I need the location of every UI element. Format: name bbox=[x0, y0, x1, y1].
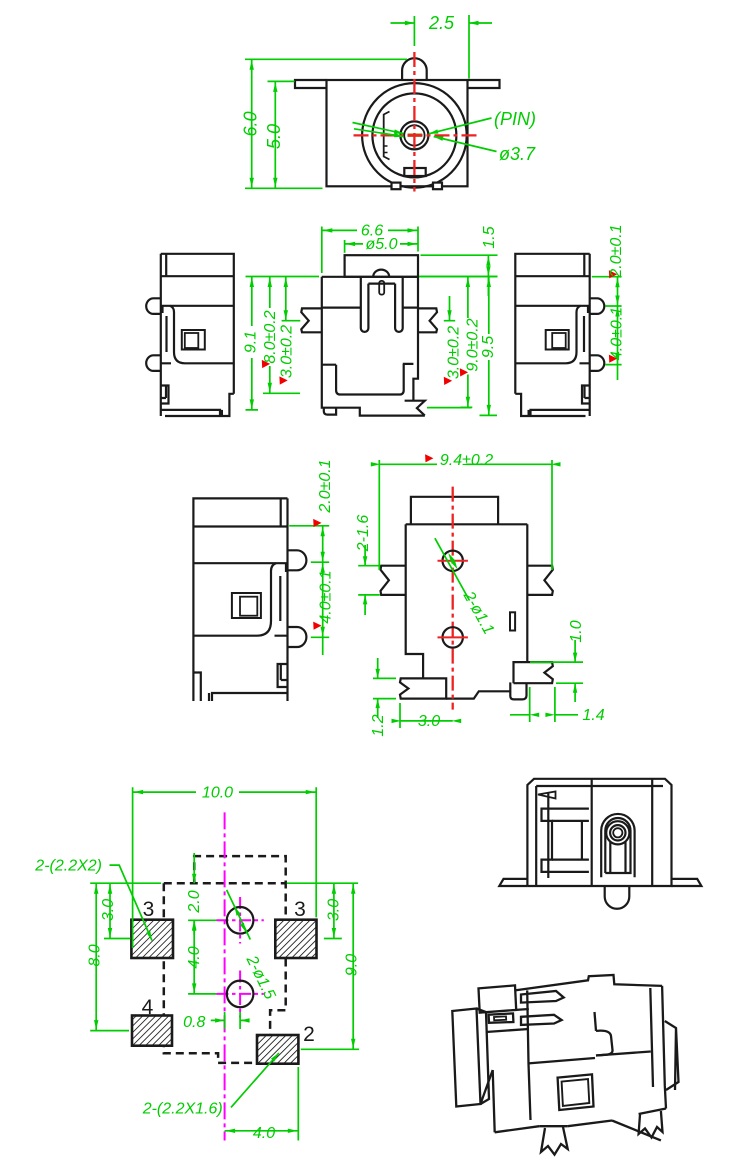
svg-text:ø5.0: ø5.0 bbox=[365, 236, 397, 253]
svg-text:4.0: 4.0 bbox=[186, 946, 203, 968]
svg-text:(PIN): (PIN) bbox=[494, 109, 536, 129]
svg-text:2-1.6: 2-1.6 bbox=[355, 515, 372, 553]
svg-text:6.0: 6.0 bbox=[240, 111, 260, 136]
svg-text:8.0±0.2: 8.0±0.2 bbox=[262, 310, 279, 363]
svg-text:ø3.7: ø3.7 bbox=[499, 144, 536, 164]
svg-text:9.0±0.2: 9.0±0.2 bbox=[465, 318, 482, 371]
svg-text:2.0±0.1: 2.0±0.1 bbox=[317, 459, 334, 513]
svg-text:5.0: 5.0 bbox=[264, 124, 284, 149]
svg-text:8.0: 8.0 bbox=[87, 944, 104, 966]
svg-text:1.4: 1.4 bbox=[582, 707, 604, 724]
svg-text:4.0±0.1: 4.0±0.1 bbox=[608, 307, 625, 360]
svg-text:3.0: 3.0 bbox=[326, 899, 343, 921]
svg-text:3.0±0.2: 3.0±0.2 bbox=[279, 325, 296, 378]
svg-text:4.0±0.1: 4.0±0.1 bbox=[318, 570, 335, 623]
svg-text:2.0: 2.0 bbox=[186, 890, 203, 913]
svg-text:3.0±0.2: 3.0±0.2 bbox=[446, 326, 463, 379]
svg-text:9.0: 9.0 bbox=[344, 954, 361, 976]
svg-text:9.5: 9.5 bbox=[480, 336, 497, 358]
svg-text:1.2: 1.2 bbox=[370, 714, 387, 736]
svg-text:2-(2.2X1.6): 2-(2.2X1.6) bbox=[142, 1101, 223, 1118]
svg-text:3.0: 3.0 bbox=[100, 899, 117, 921]
svg-text:3: 3 bbox=[143, 898, 155, 921]
svg-text:10.0: 10.0 bbox=[202, 785, 233, 802]
svg-text:4.0: 4.0 bbox=[253, 1125, 275, 1142]
svg-text:3.0: 3.0 bbox=[418, 713, 440, 730]
svg-text:0.8: 0.8 bbox=[183, 1014, 205, 1031]
svg-text:2: 2 bbox=[303, 1023, 315, 1046]
svg-text:9.4±0.2: 9.4±0.2 bbox=[440, 452, 493, 469]
svg-text:9.1: 9.1 bbox=[243, 331, 260, 353]
svg-text:1.5: 1.5 bbox=[481, 226, 498, 248]
svg-text:4: 4 bbox=[142, 996, 154, 1019]
svg-text:3: 3 bbox=[294, 898, 306, 921]
svg-text:1.0: 1.0 bbox=[568, 620, 585, 642]
svg-text:2-(2.2X2): 2-(2.2X2) bbox=[34, 858, 102, 875]
svg-text:2.5: 2.5 bbox=[428, 13, 455, 33]
svg-text:2.0±0.1: 2.0±0.1 bbox=[608, 224, 625, 278]
